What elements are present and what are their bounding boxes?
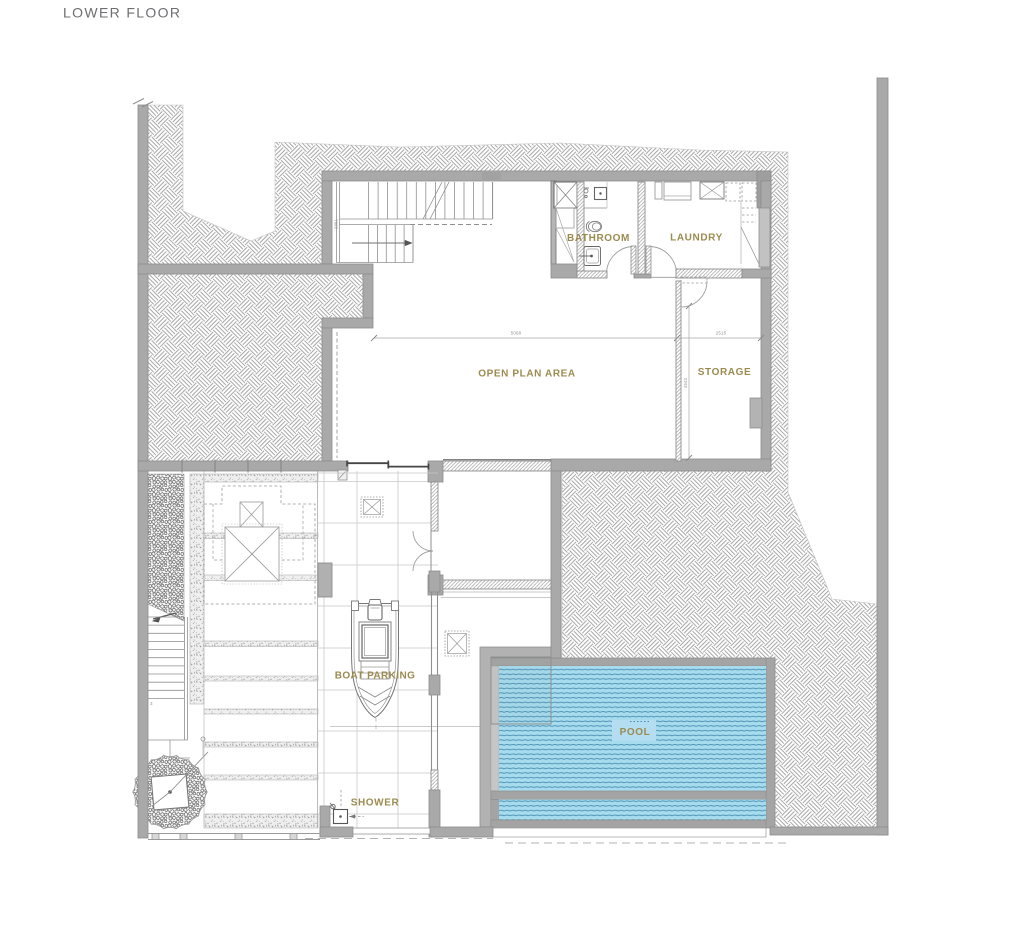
svg-text:POOL: POOL: [620, 727, 651, 738]
svg-text:BATHROOM: BATHROOM: [567, 233, 630, 244]
svg-text:5068: 5068: [511, 331, 522, 336]
svg-text:STORAGE: STORAGE: [698, 367, 751, 378]
svg-text:2515: 2515: [716, 331, 727, 336]
svg-text:LAUNDRY: LAUNDRY: [670, 233, 723, 244]
svg-text:2861: 2861: [334, 218, 339, 229]
svg-text:LOWER FLOOR: LOWER FLOOR: [63, 4, 181, 20]
svg-text:BOAT PARKING: BOAT PARKING: [335, 671, 416, 682]
svg-text:SHOWER: SHOWER: [351, 798, 400, 809]
svg-text:4543: 4543: [683, 377, 688, 388]
svg-text:OPEN PLAN AREA: OPEN PLAN AREA: [478, 369, 575, 380]
